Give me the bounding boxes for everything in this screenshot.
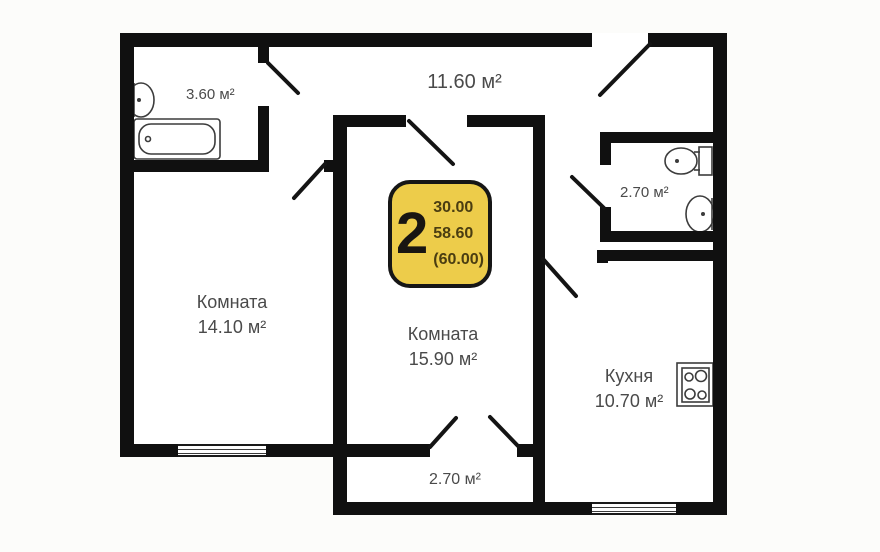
room1-door — [294, 164, 325, 198]
corridor-door-left — [430, 418, 456, 447]
wc-area-label: 2.70 м² — [620, 184, 669, 201]
kitchen-area: 10.70 м² — [549, 389, 709, 414]
room1-label: Комната 14.10 м² — [152, 290, 312, 340]
bathroom-area-label: 3.60 м² — [186, 86, 235, 103]
badge-living-area: 30.00 — [433, 195, 484, 221]
bathroom-door — [268, 63, 298, 93]
badge-areas: 30.00 58.60 (60.00) — [433, 195, 484, 273]
badge-total-area: (60.00) — [433, 247, 484, 273]
room1-area: 14.10 м² — [152, 315, 312, 340]
hallway-area-label: 11.60 м² — [407, 71, 522, 94]
kitchen-name: Кухня — [549, 364, 709, 389]
corridor-door-right — [490, 417, 518, 446]
kitchen-label: Кухня 10.70 м² — [549, 364, 709, 414]
wc-door — [572, 177, 604, 208]
room2-name: Комната — [363, 322, 523, 347]
apartment-badge: 2 30.00 58.60 (60.00) — [388, 180, 492, 288]
badge-rooms-count: 2 — [396, 205, 426, 263]
corridor-area-label: 2.70 м² — [405, 471, 505, 489]
room1-name: Комната — [152, 290, 312, 315]
kitchen-door — [543, 259, 576, 296]
floor-plan: 3.60 м² 11.60 м² 2.70 м² Комната 14.10 м… — [0, 0, 880, 552]
room2-door — [409, 121, 453, 164]
badge-area: 58.60 — [433, 221, 484, 247]
room2-label: Комната 15.90 м² — [363, 322, 523, 372]
room2-area: 15.90 м² — [363, 347, 523, 372]
entrance-door — [600, 44, 650, 95]
